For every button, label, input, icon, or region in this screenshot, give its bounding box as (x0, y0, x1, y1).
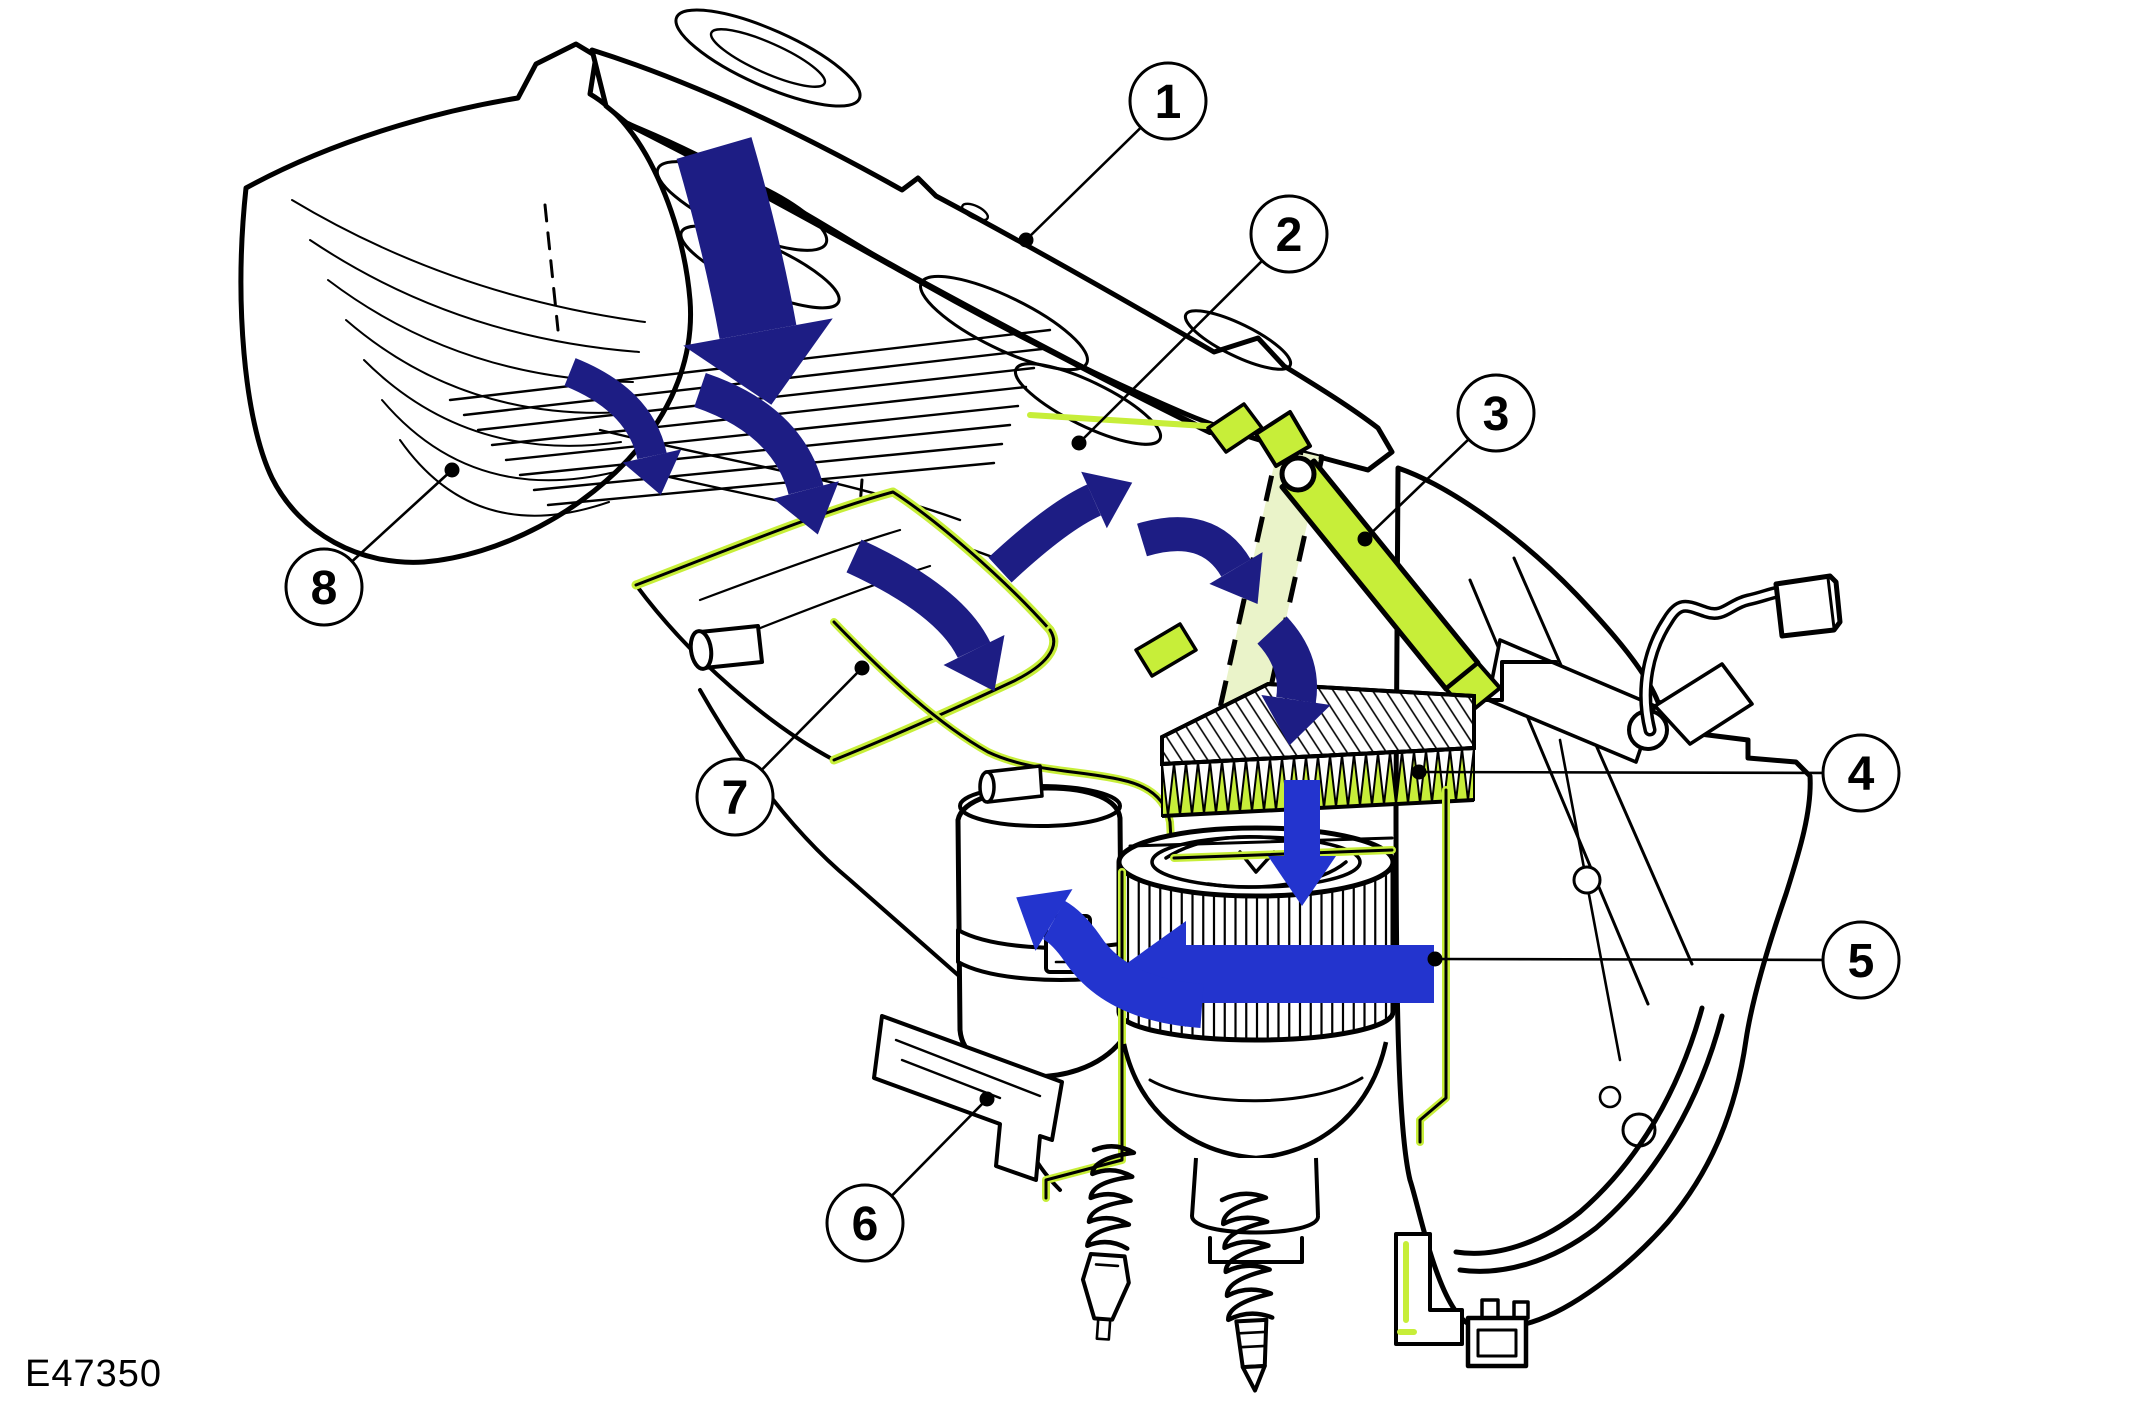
screw-tip (1243, 1366, 1266, 1391)
callout-6: 6 (827, 1092, 995, 1262)
callout-number: 4 (1848, 748, 1875, 801)
callout-leader (892, 1099, 987, 1196)
callout-target-dot (980, 1092, 995, 1107)
housing-hole (1600, 1087, 1620, 1107)
callout-target-dot (1358, 532, 1373, 547)
filter-inlet-arrow (1142, 534, 1263, 604)
callout-number: 6 (852, 1198, 879, 1251)
drain-pipe-stub (688, 626, 762, 670)
callout-target-dot (1412, 765, 1427, 780)
lid-hinge-pin (1282, 458, 1314, 490)
hvac-airflow-diagram: 12345678 E47350 (0, 0, 2139, 1407)
spade-connector (1080, 1254, 1130, 1321)
diagram-page: 12345678 E47350 (0, 0, 2139, 1407)
callout-number: 8 (311, 562, 338, 615)
motor-spring-left (1079, 1145, 1138, 1341)
plenum-up-arrow (1000, 472, 1132, 570)
figure-code: E47350 (25, 1353, 162, 1395)
foam-seal-clip (1136, 624, 1196, 676)
callout-leader (1435, 959, 1823, 960)
callout-leader (1419, 772, 1823, 773)
callout-target-dot (445, 463, 460, 478)
pot-stub (980, 766, 1042, 802)
housing-hole (1574, 867, 1600, 893)
callout-target-dot (1428, 952, 1443, 967)
callout-number: 2 (1276, 209, 1303, 262)
callout-target-dot (855, 661, 870, 676)
callout-1: 1 (1019, 63, 1207, 248)
callout-target-dot (1072, 436, 1087, 451)
callout-number: 5 (1848, 935, 1875, 988)
callout-target-dot (1019, 233, 1034, 248)
callout-number: 1 (1155, 76, 1182, 129)
callout-number: 7 (722, 772, 749, 825)
callout-leader (1026, 128, 1141, 240)
callout-number: 3 (1483, 388, 1510, 441)
